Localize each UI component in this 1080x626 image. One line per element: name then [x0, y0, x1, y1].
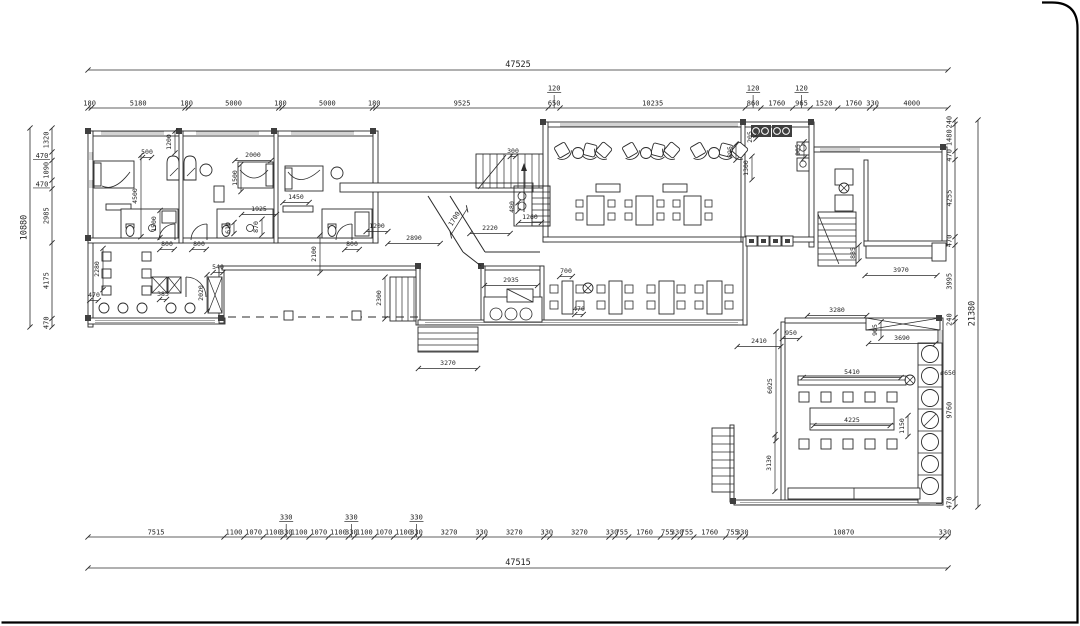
chair: [625, 301, 633, 309]
lounge-chair: [552, 141, 574, 162]
landing-plant: [518, 202, 526, 210]
dim-label: 3270: [506, 529, 523, 537]
lounge-table: [709, 148, 720, 159]
furniture-item: [835, 195, 853, 211]
dim-label: 4500: [131, 188, 139, 204]
dim-label: 1070: [310, 529, 327, 537]
lounge-chair-seat: [596, 142, 613, 159]
chair: [647, 301, 655, 309]
chair: [550, 285, 558, 293]
chair: [576, 200, 583, 207]
chair: [725, 301, 733, 309]
chair: [673, 213, 680, 220]
pier: [540, 119, 546, 125]
dim-label: 885: [849, 247, 857, 259]
pier: [218, 315, 224, 321]
stool: [887, 392, 897, 402]
chair: [677, 285, 685, 293]
round-stool: [922, 368, 939, 385]
pier: [936, 315, 942, 321]
wall-segment: [741, 122, 745, 242]
dim-label: 470: [946, 496, 954, 509]
round-stool: [166, 303, 176, 313]
round-stool: [922, 390, 939, 407]
round-stool: [922, 478, 939, 495]
chair: [657, 200, 664, 207]
dim-label: 905: [794, 144, 802, 156]
dim-label: ø650: [940, 369, 956, 377]
dim-label: 2100: [310, 246, 318, 262]
dim-label: 6025: [766, 378, 774, 394]
round-stool: [922, 346, 939, 363]
dim-label: 2935: [503, 276, 519, 284]
stair-outline: [390, 277, 416, 321]
dim-label: 540: [212, 263, 224, 271]
dim-label: 9525: [454, 100, 471, 108]
wall-segment: [274, 131, 278, 243]
wall-segment: [743, 237, 747, 325]
stool: [799, 392, 809, 402]
chair: [705, 213, 712, 220]
furniture-item: [707, 281, 722, 314]
dim-label: 330: [280, 514, 293, 522]
dim-label: 480: [508, 201, 516, 213]
chair: [608, 200, 615, 207]
furniture-item: [142, 269, 151, 278]
dim-label: 10235: [642, 100, 663, 108]
round-stool: [118, 303, 128, 313]
pier: [370, 128, 376, 134]
dim-label: 180: [274, 100, 287, 108]
round-stool: [922, 456, 939, 473]
chair: [625, 200, 632, 207]
dim-label: 1100: [291, 529, 308, 537]
round-stool: [99, 303, 109, 313]
lounge-chair: [620, 141, 642, 162]
dim-label: 3690: [894, 334, 910, 342]
dim-label: 1090: [43, 162, 51, 179]
lounge-table: [641, 148, 652, 159]
pier: [415, 263, 421, 269]
closet: [184, 156, 196, 180]
dim-label: 1500: [231, 170, 239, 186]
dim-label: 470: [36, 152, 49, 160]
chair: [625, 285, 633, 293]
dim-label: 1500: [150, 216, 158, 232]
walkway-post: [284, 311, 293, 320]
chair: [657, 213, 664, 220]
wall-segment: [88, 318, 225, 324]
dim-label: 470: [88, 291, 100, 299]
furniture-item: [797, 158, 809, 171]
dim-label: 47525: [505, 60, 531, 70]
corridor-wall: [463, 252, 481, 266]
wall-segment: [416, 266, 420, 325]
stool: [843, 439, 853, 449]
pier: [85, 315, 91, 321]
dim-label: 950: [785, 329, 797, 337]
dim-label: 5000: [225, 100, 242, 108]
furniture-item: [663, 184, 687, 192]
dim-label: 1450: [288, 193, 304, 201]
dim-label: 2985: [43, 207, 51, 224]
furniture-item: [162, 211, 176, 223]
dim-label: 1100: [356, 529, 373, 537]
round-stool: [185, 303, 195, 313]
toilet: [328, 226, 336, 237]
furniture-item: [684, 196, 701, 225]
closet: [167, 156, 179, 180]
pier: [85, 235, 91, 241]
dim-label: 905: [871, 324, 879, 336]
dim-label: 470: [946, 235, 954, 248]
dim-label: 1070: [245, 529, 262, 537]
chair: [597, 301, 605, 309]
pier: [271, 128, 277, 134]
dim-label: 2410: [751, 337, 767, 345]
dim-label: 120: [747, 85, 760, 93]
dim-label: 3280: [829, 306, 845, 314]
wall-segment: [88, 238, 378, 243]
dim-label: 330: [410, 514, 423, 522]
dim-label: 1760: [701, 529, 718, 537]
dim-label: 7515: [148, 529, 165, 537]
dim-label: 4225: [844, 416, 860, 424]
dim-label: 10880: [20, 215, 30, 241]
dim-label: 21380: [968, 301, 978, 327]
wall-segment: [179, 131, 183, 243]
dim-label: 180: [368, 100, 381, 108]
lounge-chair-seat: [554, 142, 570, 158]
side-table: [200, 164, 212, 176]
counter-mark: [785, 239, 790, 243]
sofa-cushion: [505, 308, 517, 320]
walkway-post: [352, 311, 361, 320]
pier: [730, 498, 736, 504]
pier: [740, 119, 746, 125]
stair-outline: [418, 327, 478, 352]
dim-label: 2020: [197, 285, 205, 301]
counter-mark: [773, 239, 778, 243]
wall-segment: [932, 243, 946, 261]
dim-label: 895: [726, 146, 734, 158]
dim-label: 1150: [898, 418, 906, 434]
chair: [625, 213, 632, 220]
dim-label: 1925: [251, 205, 267, 213]
chair: [576, 213, 583, 220]
lounge-chair-seat: [622, 142, 638, 158]
dim-label: 9760: [946, 402, 954, 419]
chair: [597, 285, 605, 293]
dim-tick: [464, 205, 471, 212]
lounge-chair-seat: [732, 142, 749, 159]
chair: [695, 301, 703, 309]
dim-label: 2890: [406, 234, 422, 242]
dim-label: 2000: [245, 151, 261, 159]
dim-label: 5410: [844, 368, 860, 376]
furniture-item: [659, 281, 674, 314]
sofa-cushion: [520, 308, 532, 320]
wall-segment: [866, 246, 938, 258]
furniture-item: [609, 281, 622, 314]
chair: [647, 285, 655, 293]
dim-label: 2300: [375, 290, 383, 306]
dim-label: 1200: [165, 134, 173, 150]
sofa-cushion: [490, 308, 502, 320]
dim-label: 470: [36, 180, 49, 188]
dim-label: 470: [43, 316, 51, 329]
stool: [821, 392, 831, 402]
chair: [725, 285, 733, 293]
round-stool: [922, 434, 939, 451]
interior-dim: 1700: [441, 202, 470, 239]
dim-label: 5000: [319, 100, 336, 108]
dim-label: 870: [252, 221, 260, 233]
dim-label: 1260: [522, 213, 538, 221]
dim-label: 4255: [946, 190, 954, 207]
stool: [821, 439, 831, 449]
chair: [677, 301, 685, 309]
wall-segment: [781, 322, 785, 502]
furniture-item: [142, 286, 151, 295]
dim-label: 3130: [765, 455, 773, 471]
furniture-item: [596, 184, 620, 192]
lounge-chair: [688, 141, 710, 162]
furniture-item: [283, 206, 313, 212]
dim-label: 3270: [440, 359, 456, 367]
dim-label: 800: [346, 240, 358, 248]
furniture-item: [355, 212, 369, 236]
dim-label: 500: [141, 148, 153, 156]
chair: [705, 200, 712, 207]
dim-label: 1760: [636, 529, 653, 537]
round-stool: [137, 303, 147, 313]
dim-label: 610: [224, 222, 232, 234]
wall-segment: [864, 160, 868, 246]
dim-label: 330: [345, 514, 358, 522]
wall-segment: [809, 122, 814, 247]
wall-segment: [222, 266, 420, 270]
lounge-chair-seat: [583, 143, 598, 158]
dim-label: 5180: [130, 100, 147, 108]
stool: [865, 392, 875, 402]
toilet: [126, 226, 134, 237]
dim-label: 385: [157, 290, 169, 298]
wall-segment: [785, 318, 868, 323]
dim-label: 800: [161, 240, 173, 248]
dim-label: 180: [180, 100, 193, 108]
dim-label: 1760: [768, 100, 785, 108]
furniture-item: [94, 163, 101, 186]
wall-segment: [543, 122, 548, 242]
stair-rail: [818, 214, 839, 264]
counter-mark: [749, 239, 754, 243]
dim-label: 1480: [946, 129, 954, 146]
dim-label: 1320: [43, 132, 51, 149]
dim-label: 2220: [482, 224, 498, 232]
dim-label: 3270: [441, 529, 458, 537]
chair: [550, 301, 558, 309]
side-table: [331, 167, 343, 179]
chair: [695, 285, 703, 293]
stool: [865, 439, 875, 449]
lounge-table: [573, 148, 584, 159]
wall-segment: [730, 425, 734, 502]
furniture-item: [562, 281, 573, 314]
stool: [843, 392, 853, 402]
dim-label: 3995: [946, 273, 954, 290]
lounge-chair-seat: [664, 142, 681, 159]
furniture-item: [266, 164, 273, 186]
dim-label: 1100: [226, 529, 243, 537]
furniture-item: [214, 186, 224, 202]
furniture-item: [142, 252, 151, 261]
dim-label: 180: [83, 100, 96, 108]
lounge-chair-seat: [690, 142, 706, 158]
stool: [799, 439, 809, 449]
stair-arrow-head: [521, 163, 527, 171]
dim-label: 47515: [505, 558, 531, 568]
wall-segment: [481, 266, 543, 270]
dim-label: 120: [548, 85, 561, 93]
dim-label: 470: [946, 149, 954, 162]
lounge-chair-seat: [651, 143, 666, 158]
dim-label: 470: [573, 305, 585, 313]
dim-label: 755: [615, 529, 628, 537]
stool: [887, 439, 897, 449]
dim-label: 3270: [571, 529, 588, 537]
dim-label: 755: [681, 529, 694, 537]
dim-label: 205: [746, 131, 754, 143]
chair: [673, 200, 680, 207]
furniture-item: [587, 196, 604, 225]
dim-label: 1520: [816, 100, 833, 108]
dim-label: 300: [507, 147, 519, 155]
dim-label: 3970: [893, 266, 909, 274]
drawing-canvas: architectural-floor-plan 180518018050001…: [0, 0, 1080, 626]
dim-label: 1200: [369, 222, 385, 230]
floor-plan: architectural-floor-plan 180518018050001…: [0, 0, 1080, 626]
counter-mark: [761, 239, 766, 243]
pier: [808, 119, 814, 125]
dim-label: 1300: [742, 160, 750, 176]
dim-label: 4175: [43, 272, 51, 289]
furniture-item: [636, 196, 653, 225]
dim-label: 10870: [833, 529, 854, 537]
dim-label: 1760: [845, 100, 862, 108]
dim-label: 1700: [447, 210, 462, 228]
dim-label: 4000: [903, 100, 920, 108]
furniture-item: [285, 168, 292, 189]
dim-label: 120: [795, 85, 808, 93]
wall-segment: [543, 237, 746, 242]
pier: [85, 128, 91, 134]
dim-label: 700: [560, 267, 572, 275]
dim-label: 800: [193, 240, 205, 248]
dim-label: 1070: [375, 529, 392, 537]
dim-label: 2280: [93, 261, 101, 277]
chair: [608, 213, 615, 220]
landing-plant: [518, 192, 526, 200]
